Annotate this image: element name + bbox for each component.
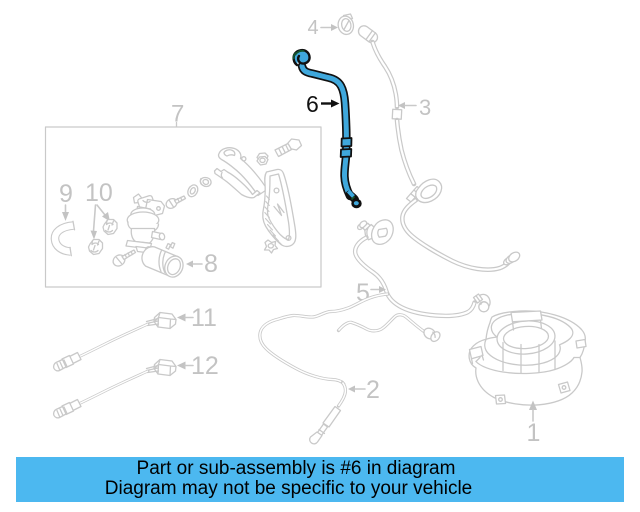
svg-text:2: 2	[366, 376, 380, 404]
svg-text:9: 9	[59, 180, 73, 208]
svg-text:3: 3	[419, 95, 431, 120]
svg-text:6: 6	[306, 91, 319, 117]
svg-text:7: 7	[171, 101, 184, 128]
svg-text:11: 11	[191, 304, 217, 332]
svg-text:4: 4	[308, 17, 319, 39]
svg-text:8: 8	[204, 250, 218, 278]
svg-text:1: 1	[527, 419, 541, 447]
svg-text:12: 12	[191, 352, 219, 380]
svg-text:10: 10	[85, 179, 113, 207]
